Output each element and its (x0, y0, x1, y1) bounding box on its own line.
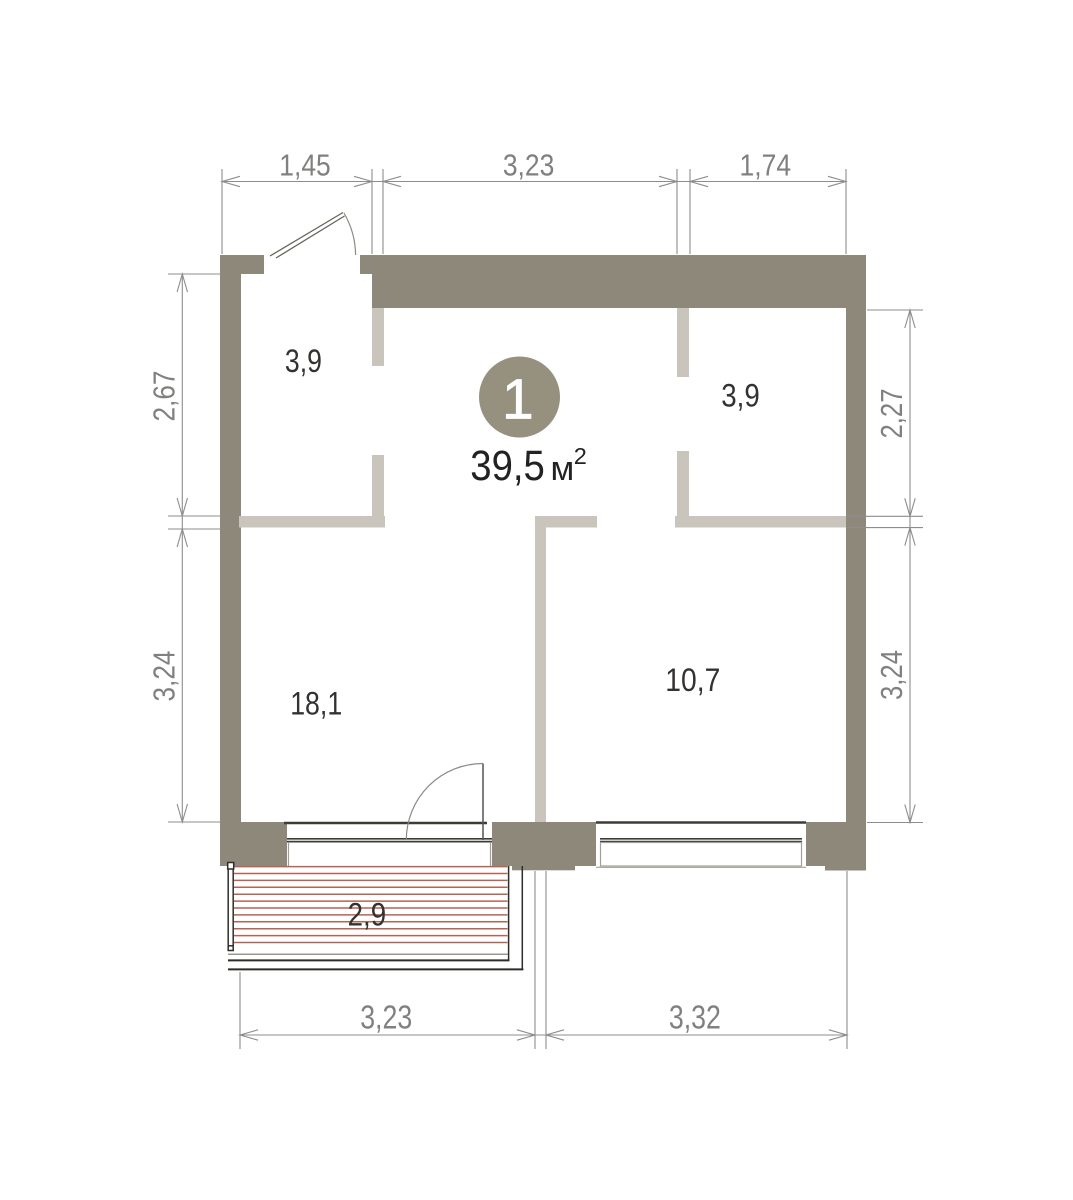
svg-text:2: 2 (574, 443, 587, 469)
svg-text:3,24: 3,24 (147, 651, 182, 702)
svg-text:39,5: 39,5 (470, 442, 545, 490)
svg-text:3,24: 3,24 (875, 650, 909, 700)
svg-text:2,27: 2,27 (875, 389, 909, 439)
svg-text:1,45: 1,45 (279, 148, 331, 182)
svg-text:3,9: 3,9 (721, 378, 760, 414)
svg-text:м: м (551, 450, 575, 488)
svg-text:2,9: 2,9 (348, 897, 387, 933)
svg-text:1: 1 (502, 368, 534, 432)
svg-text:1,74: 1,74 (740, 148, 792, 182)
svg-text:3,9: 3,9 (285, 343, 322, 379)
svg-text:3,23: 3,23 (360, 1000, 412, 1037)
svg-text:3,23: 3,23 (503, 148, 555, 182)
svg-text:18,1: 18,1 (290, 686, 342, 722)
svg-text:10,7: 10,7 (665, 662, 720, 698)
svg-text:3,32: 3,32 (669, 1000, 721, 1037)
svg-text:2,67: 2,67 (147, 371, 182, 422)
